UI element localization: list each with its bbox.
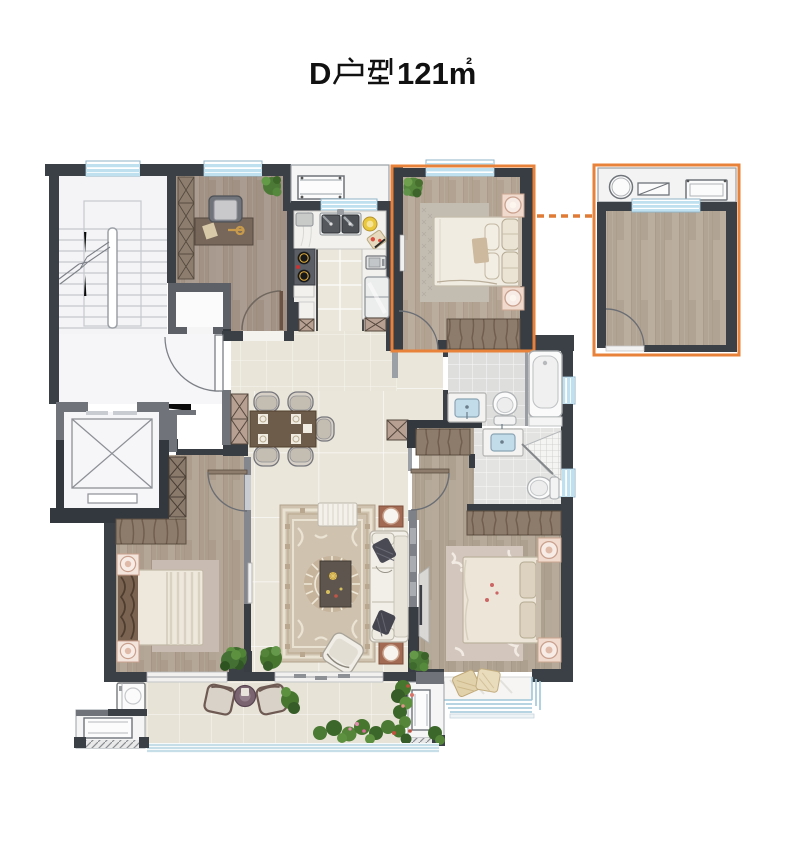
svg-text:121m: 121m [397, 56, 476, 91]
svg-text:D: D [309, 56, 331, 91]
svg-text:²: ² [466, 54, 472, 74]
